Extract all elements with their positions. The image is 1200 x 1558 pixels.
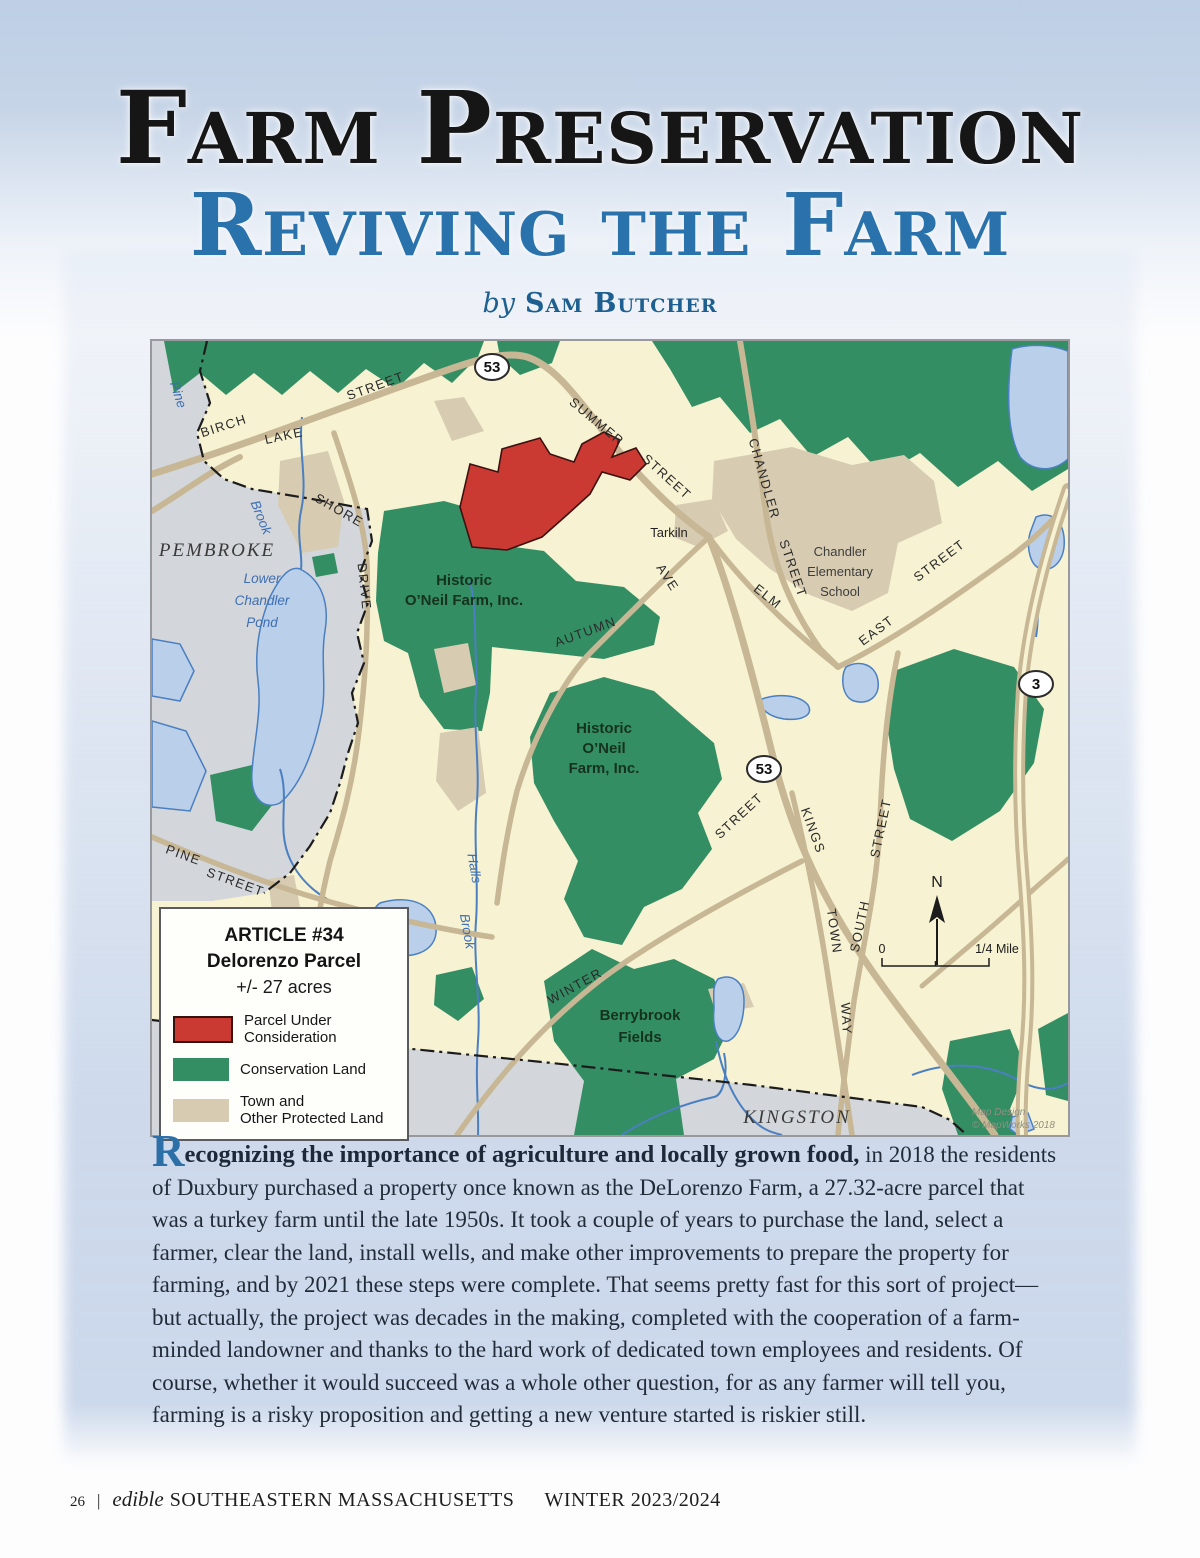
legend-item-label: Other Protected Land: [240, 1110, 383, 1127]
legend-subtitle: Delorenzo Parcel: [171, 949, 397, 975]
svg-text:Elementary: Elementary: [807, 564, 873, 579]
route-shield-53b: 53: [747, 756, 781, 782]
oneil-farm-label-2: Historic: [576, 720, 632, 737]
legend-title: ARTICLE #34: [171, 923, 397, 949]
issue-label: WINTER 2023/2024: [544, 1489, 720, 1512]
drop-cap: R: [152, 1126, 185, 1176]
svg-text:School: School: [820, 584, 860, 599]
byline-author: Sam Butcher: [525, 288, 718, 319]
legend-item-label: Consideration: [244, 1029, 337, 1046]
berrybrook-fields-label: Berrybrook: [600, 1007, 682, 1024]
map-figure: 53 53 3 BIRCH LAKE STREET SHORE DRIVE SU…: [150, 339, 1070, 1137]
berrybrook-fields-label: Fields: [618, 1029, 661, 1046]
legend-item-conservation: Conservation Land: [171, 1058, 397, 1081]
pembroke-label: PEMBROKE: [158, 540, 275, 561]
magazine-brand-caps: SOUTHEASTERN MASSACHUSETTS: [170, 1489, 515, 1512]
legend-item-label: Parcel Under: [244, 1012, 332, 1029]
page-number: 26: [70, 1494, 85, 1511]
byline-prefix: by: [482, 288, 515, 319]
legend-item-label: Conservation Land: [240, 1061, 366, 1078]
north-label: N: [931, 874, 943, 891]
page-footer: 26 | edible SOUTHEASTERN MASSACHUSETTS W…: [70, 1487, 1130, 1512]
byline: bySam Butcher: [0, 288, 1200, 319]
legend-item-protected: Town andOther Protected Land: [171, 1093, 397, 1127]
page-subtitle: Reviving the Farm: [0, 183, 1200, 269]
conservation-green-swatch: [173, 1058, 229, 1081]
water-label: Pond: [246, 615, 278, 630]
svg-text:Chandler: Chandler: [814, 544, 867, 559]
street-label: WAY: [838, 1002, 855, 1035]
article-paragraph: Recognizing the importance of agricultur…: [152, 1139, 1058, 1432]
route-53-label: 53: [484, 359, 501, 376]
parcel-red-swatch: [173, 1016, 233, 1043]
footer-separator: |: [97, 1491, 100, 1511]
scale-zero-label: 0: [879, 942, 886, 956]
oneil-farm-label-2: Farm, Inc.: [569, 760, 640, 777]
paragraph-text: in 2018 the residents of Duxbury purchas…: [152, 1142, 1056, 1427]
water-label: Chandler: [235, 593, 290, 608]
lead-sentence: ecognizing the importance of agriculture…: [185, 1141, 860, 1168]
article-body: Recognizing the importance of agricultur…: [152, 1139, 1058, 1432]
street-label: Tarkiln: [650, 525, 688, 540]
map-credit: © MapWorks 2018: [972, 1120, 1055, 1131]
protected-tan-swatch: [173, 1099, 229, 1122]
water-label: Lower: [244, 571, 281, 586]
magazine-brand-italic: edible: [112, 1487, 163, 1512]
legend-item-parcel: Parcel UnderConsideration: [171, 1012, 397, 1046]
kingston-label: KINGSTON: [742, 1107, 851, 1128]
oneil-farm-label: Historic: [436, 572, 492, 589]
map-legend: ARTICLE #34 Delorenzo Parcel +/- 27 acre…: [159, 907, 409, 1141]
map-credit: Map Design: [972, 1107, 1026, 1118]
magazine-page: Farm Preservation Reviving the Farm bySa…: [0, 0, 1200, 1558]
page-title: Farm Preservation: [0, 78, 1200, 178]
legend-item-label: Town and: [240, 1093, 304, 1110]
scale-distance-label: 1/4 Mile: [975, 942, 1019, 956]
route-shield-3: 3: [1019, 671, 1053, 697]
route-53-label: 53: [756, 761, 773, 778]
route-3-label: 3: [1032, 676, 1040, 693]
oneil-farm-label: O’Neil Farm, Inc.: [405, 592, 523, 609]
oneil-farm-label-2: O’Neil: [582, 740, 625, 757]
legend-acreage: +/- 27 acres: [171, 975, 397, 1000]
route-shield-53a: 53: [475, 354, 509, 380]
